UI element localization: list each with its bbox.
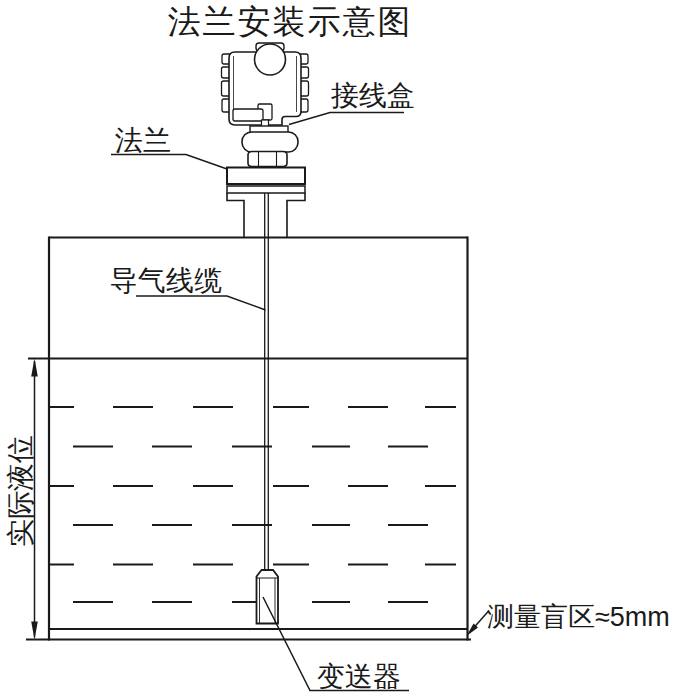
display-cap [255,44,286,75]
arrowhead-up-icon [31,359,38,377]
air-cable-label: 导气线缆 [110,265,222,296]
diagram-page: 法兰安装示意图 接线盒 法兰 导气线缆 实际液位 变送器 测量盲区≈5mm [0,0,700,700]
nozzle-outline [227,193,305,238]
cable-entry-bar [233,109,263,121]
nozzle [227,193,305,238]
blind-zone-label: 测量盲区≈5mm [487,602,670,632]
hex-nut [248,152,287,167]
transmitter-label: 变送器 [317,661,401,692]
junction-box-label: 接线盒 [331,80,415,111]
probe [257,570,279,624]
liquid-dashes [49,407,456,602]
diagram-title: 法兰安装示意图 [168,3,413,40]
flange-label: 法兰 [115,125,171,156]
flange-plate [227,168,305,185]
leader-lines [111,113,489,691]
coupling-oval [242,132,298,152]
junction-box-leader [289,113,404,125]
junction-box [222,43,309,167]
flange-installation-diagram: 法兰安装示意图 接线盒 法兰 导气线缆 实际液位 变送器 测量盲区≈5mm [0,0,700,700]
actual-level-label: 实际液位 [5,435,36,547]
flange-lower-plate [227,186,305,193]
tank-outline [26,236,471,640]
air-cable-line [265,193,269,571]
flange-leader [111,155,227,170]
air-cable-leader [136,296,266,310]
arrowhead-down-icon [31,622,38,640]
flange-assembly [227,168,305,194]
